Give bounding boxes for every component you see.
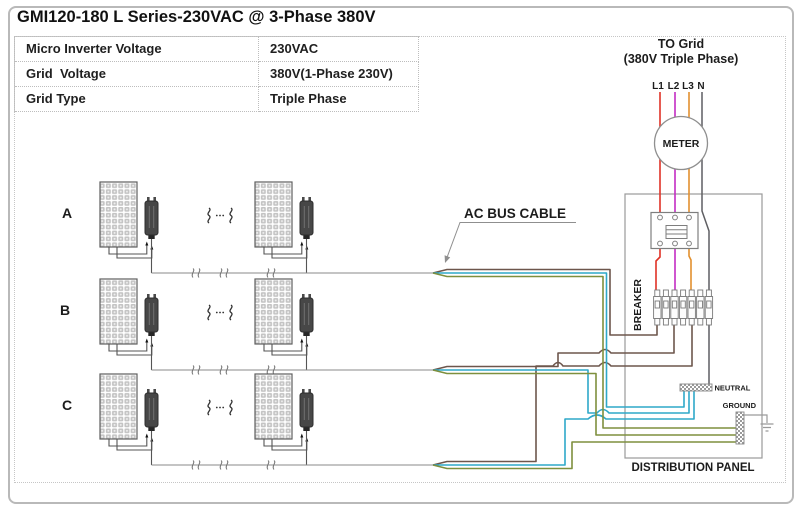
to-grid-label-line2: (380V Triple Phase) <box>624 52 739 66</box>
breaker-label: BREAKER <box>632 279 644 331</box>
ground-label: GROUND <box>723 401 757 410</box>
phase-label-l2: L2 <box>668 81 680 92</box>
distribution-panel-label: DISTRIBUTION PANEL <box>631 462 754 474</box>
to-grid-label-line1: TO Grid <box>658 37 704 51</box>
ac-bus-cable-label: AC BUS CABLE <box>464 206 566 221</box>
row-label-c: C <box>62 397 72 413</box>
meter: METER <box>655 117 708 170</box>
ac-bus-leader <box>445 223 576 264</box>
phase-label-n: N <box>697 81 704 92</box>
neutral-bar <box>680 384 712 391</box>
phase-label-l3: L3 <box>682 81 694 92</box>
wiring-diagram: METER <box>0 0 800 508</box>
page: GMI120-180 L Series-230VAC @ 3-Phase 380… <box>0 0 800 508</box>
solar-array-row-a <box>100 182 433 278</box>
solar-array-row-b <box>100 279 433 375</box>
neutral-label: NEUTRAL <box>715 384 751 393</box>
solar-array-row-c <box>100 374 433 470</box>
leader-arrow-icon <box>445 255 451 263</box>
row-label-a: A <box>62 205 72 221</box>
meter-label: METER <box>663 138 700 150</box>
phase-label-l1: L1 <box>652 81 664 92</box>
main-breaker <box>651 213 698 249</box>
ground-bar <box>736 412 744 444</box>
row-label-b: B <box>60 302 70 318</box>
